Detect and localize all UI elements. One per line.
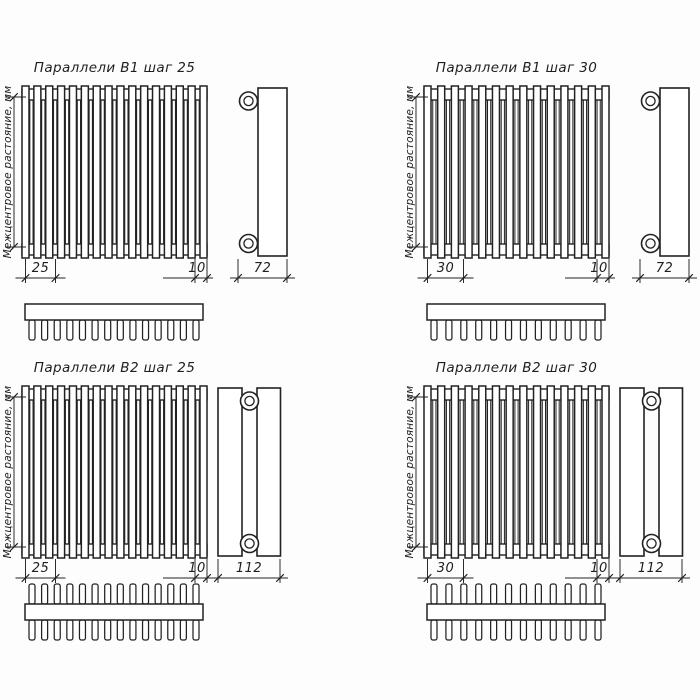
technical-drawing	[0, 0, 700, 700]
dimension-step: 30	[437, 262, 455, 275]
dimension-depth: 112	[236, 562, 262, 575]
panel-title: Параллели В2 шаг 25	[34, 362, 195, 376]
dimension-step: 25	[32, 262, 50, 275]
dimension-tube-width: 10	[590, 262, 608, 275]
dimension-tube-width: 10	[590, 562, 608, 575]
dimension-tube-width: 10	[188, 262, 206, 275]
dimension-depth: 112	[638, 562, 664, 575]
panel-title: Параллели В2 шаг 30	[436, 362, 597, 376]
dimension-tube-width: 10	[188, 562, 206, 575]
center-distance-label: Межцентровое растояние, мм	[3, 86, 14, 259]
panel-title: Параллели В1 шаг 30	[436, 62, 597, 76]
dimension-depth: 72	[656, 262, 674, 275]
dimension-depth: 72	[254, 262, 272, 275]
center-distance-label: Межцентровое растояние, мм	[405, 386, 416, 559]
panel-title: Параллели В1 шаг 25	[34, 62, 195, 76]
dimension-step: 25	[32, 562, 50, 575]
center-distance-label: Межцентровое растояние, мм	[405, 86, 416, 259]
radiator-drawing-sheet: Параллели В1 шаг 25 Межцентровое растоян…	[0, 0, 700, 700]
dimension-step: 30	[437, 562, 455, 575]
center-distance-label: Межцентровое растояние, мм	[3, 386, 14, 559]
